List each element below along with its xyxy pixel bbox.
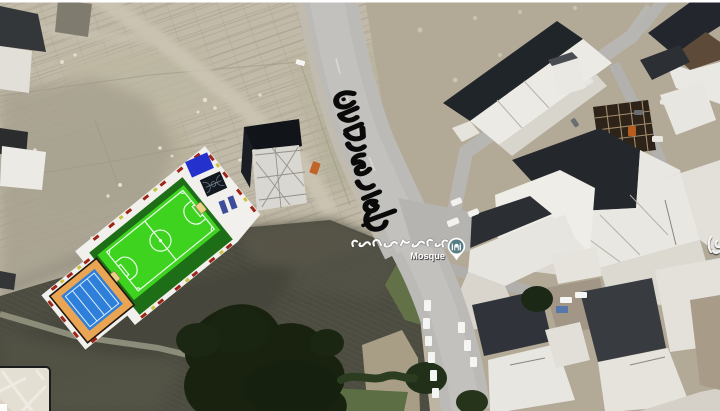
svg-text:Mosque: Mosque — [410, 251, 445, 261]
